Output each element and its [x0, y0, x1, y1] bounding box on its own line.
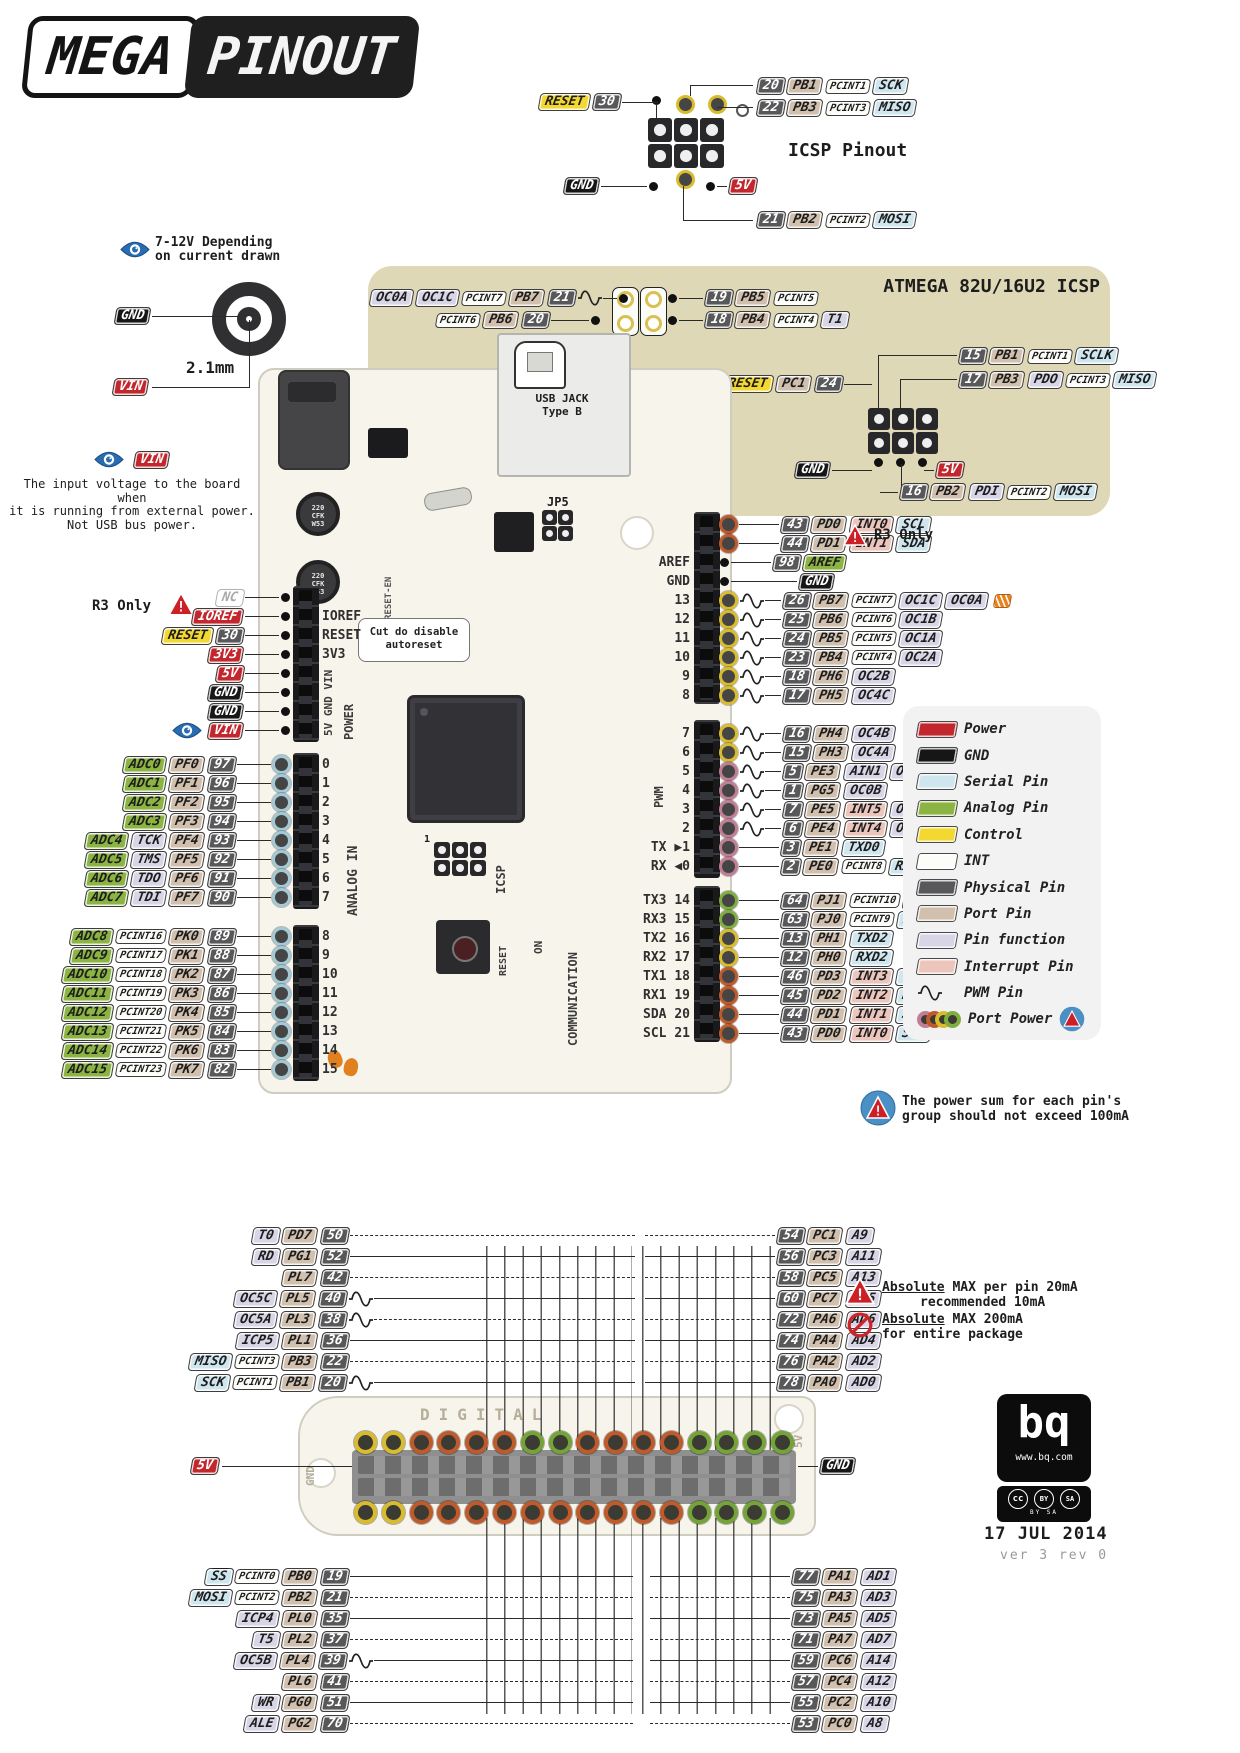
pin-label: PCINT5 [850, 631, 897, 646]
pin-row: MOSIPCINT2PB221 [88, 1587, 633, 1608]
pin-label: OC1C [414, 289, 460, 307]
pin-label: PC0 [821, 1715, 860, 1733]
pin-dot [668, 294, 677, 303]
pin-label: PCINT4 [850, 650, 897, 665]
pin-label: ADC2 [121, 794, 167, 812]
legend: PowerGNDSerial PinAnalog PinControlINTPh… [903, 706, 1101, 1040]
board-label: IOREF [322, 607, 361, 626]
board-comm-title: COMMUNICATION [566, 884, 580, 1046]
pin-label: PK0 [168, 928, 207, 946]
pin-label: PK4 [168, 1004, 207, 1022]
legend-label: Power [964, 721, 1006, 737]
pin-hole [660, 1431, 683, 1454]
pin-label: INT4 [842, 820, 888, 838]
cc-sa-icon: SA [1060, 1489, 1080, 1509]
pin-label: OC1B [897, 611, 943, 629]
pin-label: PA2 [806, 1353, 845, 1371]
pin-label: A14 [859, 1652, 898, 1670]
pin-label: PL6 [281, 1673, 320, 1691]
pin-label: 42 [319, 1269, 350, 1287]
icsp-pin1-label: 1 [424, 834, 430, 845]
legend-label: Pin function [964, 932, 1065, 948]
pin-label: PDO [1026, 371, 1065, 389]
pin-row: VIN [40, 377, 150, 397]
jp5-label: JP5 [547, 495, 569, 509]
pin-label: OC0A [943, 592, 989, 610]
pin-label: PB2 [929, 483, 968, 501]
pin-label: 94 [206, 813, 237, 831]
board-label: 11 [322, 984, 338, 1003]
pin-label: PK5 [168, 1023, 207, 1041]
pin-label: PD1 [810, 1006, 849, 1024]
pin-label: 43 [779, 1025, 810, 1043]
mcu-chip [410, 698, 522, 820]
pin-label: PB3 [786, 99, 825, 117]
on-label: ON [532, 928, 545, 954]
pin-label: OC2A [897, 649, 943, 667]
pin-label: PCINT6 [850, 612, 897, 627]
pin-label: ALE [242, 1715, 281, 1733]
pwm-icon [740, 612, 764, 628]
pin-label: PA6 [806, 1311, 845, 1329]
pin-label: PF0 [168, 756, 207, 774]
pin-dot [719, 891, 738, 910]
pin-label: PA1 [821, 1568, 860, 1586]
pin-label: AD7 [859, 1631, 898, 1649]
pin-label: 24 [813, 375, 844, 393]
board-label: 11 [634, 629, 690, 648]
pin-group-bb-right: 77PA1AD175PA3AD373PA5AD571PA7AD759PC6A14… [650, 1566, 1210, 1734]
pin-label: 51 [319, 1694, 350, 1712]
pin-dot [719, 986, 738, 1005]
board-label: RX1 19 [592, 986, 690, 1005]
pin-hole [493, 1501, 516, 1524]
pin-label: AIN1 [842, 763, 888, 781]
pin-hole [521, 1431, 544, 1454]
board-label: 13 [322, 1022, 338, 1041]
pin-dot [719, 819, 738, 838]
pin-label: OC5B [232, 1652, 278, 1670]
pin-label: PH4 [812, 725, 851, 743]
board-label: SDA 20 [592, 1005, 690, 1024]
board-label: RX2 17 [592, 948, 690, 967]
legend-item: Power [917, 716, 1087, 742]
pwm-icon [349, 1653, 373, 1669]
board-label: 0 [322, 755, 330, 774]
pin-label: 54 [775, 1227, 806, 1245]
pin-label: PG1 [281, 1248, 320, 1266]
pin-label: PB1 [786, 77, 825, 95]
pin-label: 84 [206, 1023, 237, 1041]
pin-label: PCINT7 [850, 593, 897, 608]
pin-row: GND [520, 176, 660, 196]
pin-dot [272, 946, 291, 965]
pin-label: PCINT0 [234, 1569, 281, 1584]
board-label: RX ◀0 [592, 857, 690, 876]
pin-label: INT5 [842, 801, 888, 819]
no-entry-icon [847, 1312, 873, 1338]
legend-item: GND [917, 742, 1087, 768]
pwm-icon [740, 802, 764, 818]
pin-label: 5V [727, 177, 758, 195]
pin-label: PL4 [279, 1652, 318, 1670]
pin-label: 45 [779, 987, 810, 1005]
pin-label: 19 [703, 289, 734, 307]
pin-row: ADC4TCKPF493 [28, 831, 292, 850]
pin-label: PB5 [812, 630, 851, 648]
pin-row: GND [742, 460, 872, 480]
pin-row: 75PA3AD3 [650, 1587, 1210, 1608]
pin-label: 17 [957, 371, 988, 389]
board-label: 1 [322, 774, 330, 793]
warning-icon: ! [845, 1277, 875, 1305]
legend-item: Analog Pin [917, 795, 1087, 821]
pin-group-analog2: ADC8PCINT16PK089ADC9PCINT17PK188ADC10PCI… [28, 927, 292, 1079]
pin-row: GND [742, 460, 872, 480]
pin-row: 5V [120, 1456, 220, 1476]
pin-label: RESET [160, 627, 214, 645]
comm-header-strip [694, 886, 720, 1042]
pin-dot [719, 515, 738, 534]
pin-label: OC4C [850, 687, 896, 705]
board-label: 4 [640, 781, 690, 800]
legend-swatch [916, 747, 959, 764]
legend-label: GND [964, 748, 989, 764]
pin-dot [272, 850, 291, 869]
pin-row: OC0AOC1CPCINT7PB721 [368, 288, 602, 308]
pin-dot [719, 686, 738, 705]
pwm-icon [740, 726, 764, 742]
footprint-icon [993, 594, 1012, 608]
pin-hole [676, 170, 695, 189]
pin-row: 73PA5AD5 [650, 1608, 1210, 1629]
pin-label: 44 [779, 535, 810, 553]
pin-label: OC1A [897, 630, 943, 648]
vin-note: The input voltage to the board when it i… [6, 478, 258, 532]
pin-label: 22 [319, 1353, 350, 1371]
connector-pins-bottom [354, 1501, 794, 1524]
pin-hole [688, 1431, 711, 1454]
pin-label: 82 [206, 1061, 237, 1079]
pin-row: VIN [132, 450, 222, 470]
pin-label: PB3 [281, 1353, 320, 1371]
pin-label: 37 [319, 1631, 350, 1649]
eye-icon [120, 240, 150, 259]
pin-row: 22PB3PCINT3MISO [755, 98, 1095, 118]
pin-label: PE4 [804, 820, 843, 838]
pin-label: PCINT1 [1026, 349, 1073, 364]
legend-swatch [916, 773, 959, 790]
pin-label: OC1C [897, 592, 943, 610]
board-power-title: POWER [342, 674, 356, 740]
pin-label: 1 [781, 782, 804, 800]
pin-dot [668, 316, 677, 325]
board-label: 10 [322, 965, 338, 984]
pin-label: GND [797, 573, 836, 591]
pin-label: 38 [317, 1311, 348, 1329]
pin-label: 19 [319, 1568, 350, 1586]
pin-row: ADC12PCINT20PK485 [28, 1003, 292, 1022]
pin-label: PCINT22 [115, 1043, 168, 1058]
pin-label: TMS [129, 851, 168, 869]
pin-dot [719, 800, 738, 819]
legend-item: Serial Pin [917, 769, 1087, 795]
board-power-vert: 5V GND VIN [322, 660, 335, 736]
pin-label: 3 [779, 839, 802, 857]
pin-dot [281, 593, 290, 602]
pin-dot [719, 629, 738, 648]
pin-label: OC4A [850, 744, 896, 762]
pin-dot [272, 927, 291, 946]
pin-label: PH0 [810, 949, 849, 967]
pin-row: 22PB3PCINT3MISO [755, 98, 1095, 118]
pin-label: PC4 [821, 1673, 860, 1691]
board-label: 7 [322, 888, 330, 907]
capacitor: 220 CFK W53 [296, 492, 340, 536]
pin-dot [272, 793, 291, 812]
pin-label: PCINT17 [115, 948, 168, 963]
pin-label: PC6 [821, 1652, 860, 1670]
pin-hole [715, 1431, 738, 1454]
pin-label: MOSI [1053, 483, 1099, 501]
pin-dot [719, 967, 738, 986]
pin-row: ADC15PCINT23PK782 [28, 1060, 292, 1079]
pin-hole [743, 1431, 766, 1454]
pin-hole [437, 1431, 460, 1454]
pin-row: ADC2PF295 [28, 793, 292, 812]
pin-dot [281, 688, 290, 697]
pin-label: 30 [214, 627, 245, 645]
pin-label: 22 [755, 99, 786, 117]
board-label: GND [634, 572, 690, 591]
pin-row: 5V [28, 664, 292, 683]
pin-row: OC5BPL439 [88, 1650, 633, 1671]
board-icsp-label: ICSP [494, 838, 508, 894]
pin-label: 87 [206, 966, 237, 984]
pin-hole [771, 1501, 794, 1524]
pin-row: 24PB5PCINT5OC1A [718, 629, 1198, 648]
pin-hole [576, 1431, 599, 1454]
pin-label: PH3 [812, 744, 851, 762]
pin-label: GND [818, 1457, 857, 1475]
board-label: 9 [322, 946, 338, 965]
board-label: 10 [634, 648, 690, 667]
pin-label: 50 [319, 1227, 350, 1245]
pin-label: PC5 [806, 1269, 845, 1287]
pin-label: MOSI [871, 211, 917, 229]
pin-label: 39 [317, 1652, 348, 1670]
pin-label: 36 [319, 1332, 350, 1350]
pin-label: 97 [206, 756, 237, 774]
pin-dot [272, 1003, 291, 1022]
board-label: TX ▶1 [592, 838, 690, 857]
pin-label: PCINT23 [115, 1062, 168, 1077]
reset-button-label: RESET [498, 918, 509, 976]
pin-group-pwm1: 26PB7PCINT7OC1COC0A25PB6PCINT6OC1B24PB5P… [718, 591, 1198, 705]
pin-label: INT1 [848, 1006, 894, 1024]
pin-label: 43 [779, 516, 810, 534]
pin-label: PCINT7 [461, 291, 508, 306]
pin-row: 17PB3PDOPCINT3MISO [957, 370, 1240, 390]
pin-label: 85 [206, 1004, 237, 1022]
pin-row: ALEPG270 [88, 1713, 633, 1734]
pin-row: 5V [924, 460, 1014, 480]
pin-label: PDI [967, 483, 1006, 501]
board-label: 5 [322, 850, 330, 869]
board-label: 12 [322, 1003, 338, 1022]
board-label: AREF [634, 553, 690, 572]
pin-label: 20 [520, 311, 551, 329]
svg-text:!: ! [851, 531, 859, 546]
pin-label: T1 [819, 311, 850, 329]
legend-swatch [916, 905, 959, 922]
pin-label: ADC0 [121, 756, 167, 774]
pin-label: PG5 [804, 782, 843, 800]
pin-label: PCINT18 [115, 967, 168, 982]
supply-note: 7-12V Depending on current drawn [155, 236, 280, 264]
pin-label: PF6 [168, 870, 207, 888]
legend-swatch [916, 853, 959, 870]
legend-item: PWM Pin [917, 980, 1087, 1006]
legend-label: Port Pin [964, 906, 1031, 922]
pin-dot [719, 610, 738, 629]
pin-label: 16 [781, 725, 812, 743]
pin-label: MOSI [187, 1589, 233, 1607]
jp5-header [542, 510, 573, 541]
pin-label: PA4 [806, 1332, 845, 1350]
reset-en-label: RESET-EN [384, 556, 394, 620]
pin-row: ADC9PCINT17PK188 [28, 946, 292, 965]
board-label: 3 [640, 800, 690, 819]
board-label: 5 [640, 762, 690, 781]
pin-row: 98AREF [718, 553, 1198, 572]
pin-row: 26PB7PCINT7OC1COC0A [718, 591, 1198, 610]
pin-row: ADC10PCINT18PK287 [28, 965, 292, 984]
pin-row: 20PB1PCINT1SCK [755, 76, 1095, 96]
warning-icon [1059, 1006, 1085, 1032]
pin-label: SS [203, 1568, 234, 1586]
pin-label: 89 [206, 928, 237, 946]
pin-label: A9 [844, 1227, 875, 1245]
jack-size-label: 2.1mm [186, 358, 234, 377]
pin-label: 93 [206, 832, 237, 850]
board-analog-numbers: 01234567 [322, 755, 330, 907]
legend-label: INT [964, 853, 989, 869]
pin-row: SSPCINT0PB019 [88, 1566, 633, 1587]
pwm-icon [740, 821, 764, 837]
pin-label: PD7 [281, 1227, 320, 1245]
pin-label: PB4 [734, 311, 773, 329]
pin-label: GND [562, 177, 601, 195]
pin-label: 75 [790, 1589, 821, 1607]
pin-label: PK2 [168, 966, 207, 984]
pin-label: PC3 [806, 1248, 845, 1266]
pin-hole [576, 1501, 599, 1524]
board-label: RX3 15 [592, 910, 690, 929]
pin-label: A8 [859, 1715, 890, 1733]
legend-swatch [916, 932, 959, 949]
pin-label: OC2B [850, 668, 896, 686]
pin-label: 21 [755, 211, 786, 229]
pwm-icon [740, 783, 764, 799]
pin-label: PCINT2 [234, 1590, 281, 1605]
pin-label: A12 [859, 1673, 898, 1691]
board-label: 6 [322, 869, 330, 888]
pin-dot [272, 1060, 291, 1079]
pin-row: GND [28, 702, 292, 721]
pwm-icon [740, 593, 764, 609]
pin-label: 44 [779, 1006, 810, 1024]
pin-row: OC0AOC1CPCINT7PB721 [368, 288, 602, 308]
pin-label: TXD0 [840, 839, 886, 857]
legend-label: Physical Pin [964, 880, 1065, 896]
pin-label: PG0 [281, 1694, 320, 1712]
pin-label: 15 [781, 744, 812, 762]
pin-label: OC4B [850, 725, 896, 743]
pin-label: ADC3 [121, 813, 167, 831]
pin-label: 21 [546, 289, 577, 307]
port-power-swatch [917, 1011, 961, 1028]
pin-label: VIN [132, 451, 171, 469]
pin-row: 59PC6A14 [650, 1650, 1210, 1671]
pin-dot [272, 984, 291, 1003]
analog-header-strip [293, 925, 319, 1081]
pin-label: PB1 [279, 1374, 318, 1392]
pin-label: SCK [871, 77, 910, 95]
usb-label: USB JACKType B [500, 392, 624, 418]
max-pin-warning: Absolute MAX per pin 20mA recommended 10… [882, 1280, 1078, 1310]
pin-label: INT0 [848, 1025, 894, 1043]
pin-label: PCINT5 [772, 291, 819, 306]
pin-label: 17 [781, 687, 812, 705]
pin-hole [493, 1431, 516, 1454]
pin-label: PL5 [279, 1290, 318, 1308]
pin-dot [591, 316, 600, 325]
pin-label: PCINT10 [848, 893, 901, 908]
pin-row: 18PB4PCINT4T1 [666, 310, 916, 330]
pin-row: 71PA7AD7 [650, 1629, 1210, 1650]
pin-dot [272, 812, 291, 831]
pin-label: PCINT6 [435, 313, 482, 328]
pin-label: AD3 [859, 1589, 898, 1607]
pin-dot [719, 743, 738, 762]
pin-label: PF1 [168, 775, 207, 793]
pin-label: VIN [206, 722, 245, 740]
cc-by-icon: BY [1034, 1489, 1054, 1509]
pin-row: 19PB5PCINT5 [666, 288, 916, 308]
pin-label: PD2 [810, 987, 849, 1005]
pin-row: GND [818, 1456, 918, 1476]
pin-label: TDI [129, 889, 168, 907]
pin-label: RXD2 [848, 949, 894, 967]
pin-label: 40 [317, 1290, 348, 1308]
legend-swatch [916, 879, 959, 896]
icsp-reset-row: RESET30 [486, 92, 658, 112]
pin-label: AD5 [859, 1610, 898, 1628]
pin-label: 24 [781, 630, 812, 648]
pin-label: 98 [771, 554, 802, 572]
pin-label: 12 [779, 949, 810, 967]
icsp-header [648, 118, 724, 168]
pin-row: 5V [924, 460, 1014, 480]
pin-label: VIN [111, 378, 150, 396]
pin-label: TCK [129, 832, 168, 850]
board-label: 13 [634, 591, 690, 610]
pin-row: 5V [120, 1456, 220, 1476]
pin-row: RESET30 [28, 626, 292, 645]
pin-label: ICP4 [234, 1610, 280, 1628]
mounting-hole [620, 516, 654, 550]
